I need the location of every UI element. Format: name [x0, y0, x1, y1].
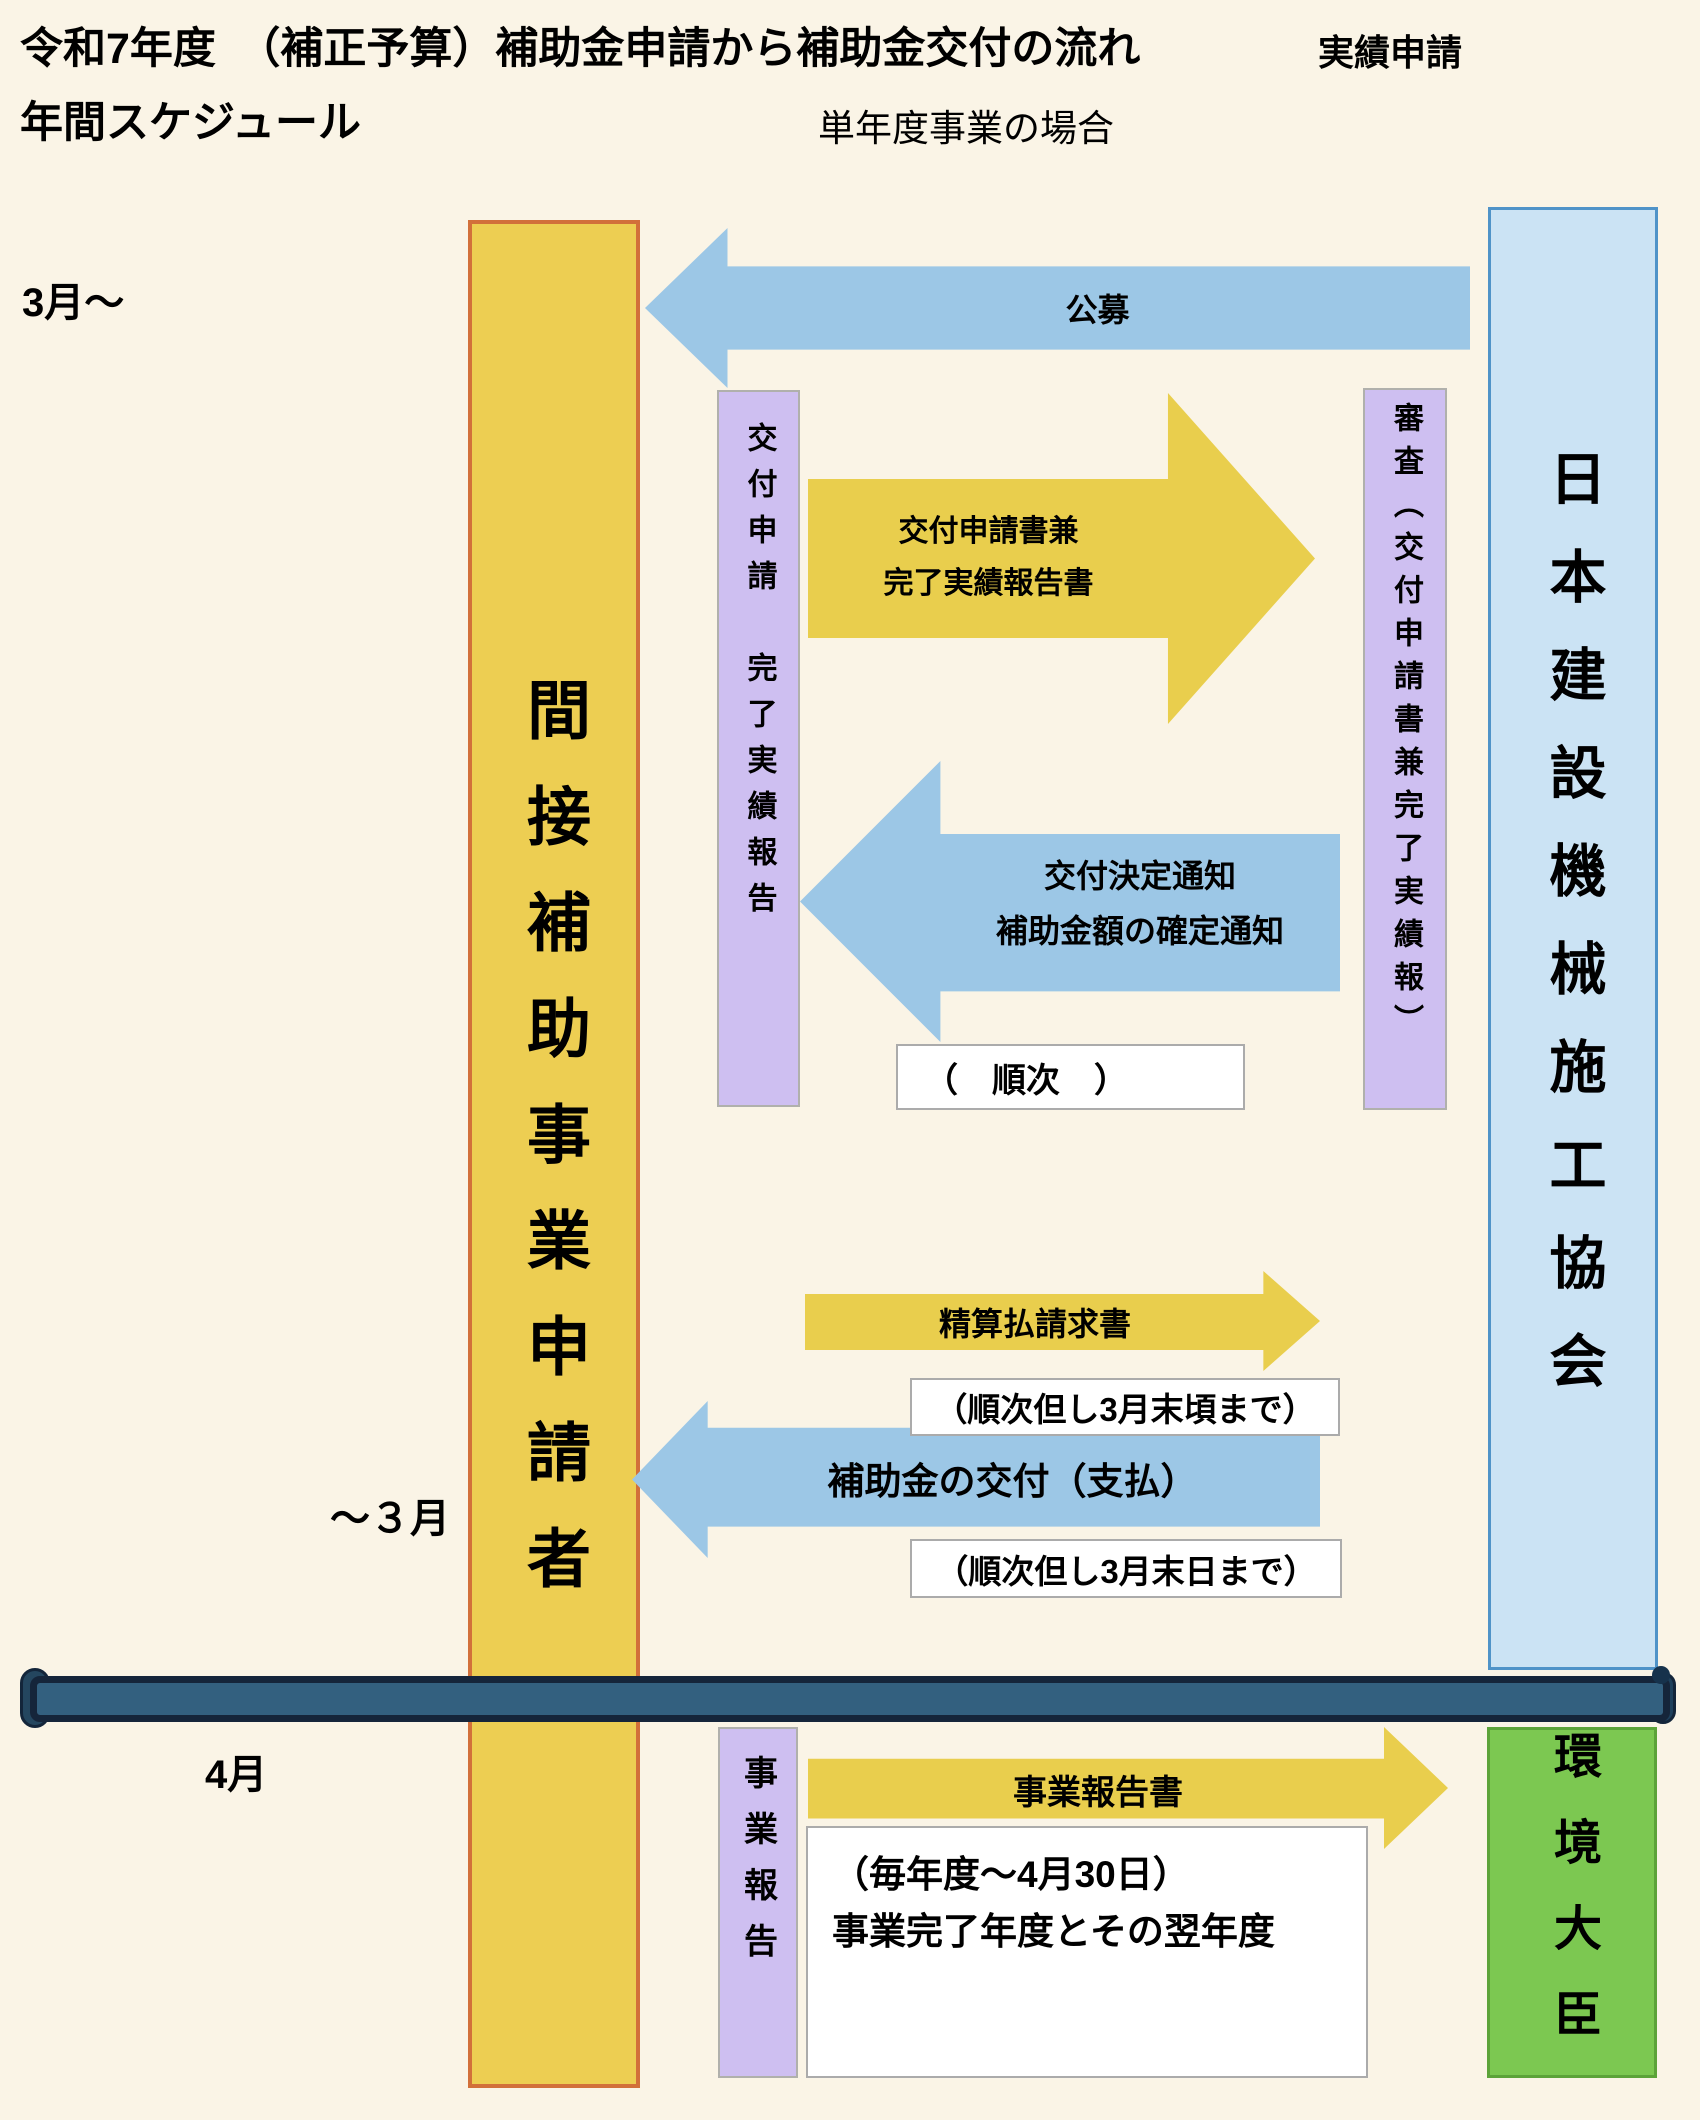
- business-report-text: 事業報告書: [1013, 1765, 1183, 1814]
- application-docs-line1: 交付申請書兼: [899, 506, 1079, 558]
- march-late-note-text: （順次但し3月末頃まで）: [934, 1383, 1315, 1431]
- minister-bar: 環境大臣: [1487, 1727, 1657, 2078]
- grant-decision-arrow-label: 交付決定通知 補助金額の確定通知: [941, 818, 1339, 990]
- report-deadline-note-box: （毎年度～4月30日） 事業完了年度とその翌年度: [806, 1826, 1368, 2078]
- business-report-stage-bar: 事業報告: [718, 1727, 798, 2078]
- business-report-arrow-label: 事業報告書: [808, 1752, 1388, 1826]
- association-bar: 日本建設機械施工協会: [1488, 207, 1658, 1670]
- page-title: 令和7年度 （補正予算）補助金申請から補助金交付の流れ: [20, 14, 1140, 76]
- association-bar-label: 日本建設機械施工協会: [1532, 449, 1614, 1429]
- page-subtitle-schedule: 年間スケジュール: [20, 88, 361, 150]
- grant-application-stage-label: 交付申請 完了実績報告: [737, 422, 781, 928]
- march-end-note-box: （順次但し3月末日まで）: [910, 1539, 1342, 1598]
- business-report-stage-label: 事業報告: [734, 1755, 783, 1979]
- grant-decision-line2: 補助金額の確定通知: [996, 904, 1284, 959]
- review-stage-bar: 審査（交付申請書兼完了実績報）: [1363, 388, 1447, 1110]
- minister-bar-label: 環境大臣: [1537, 1731, 1607, 2075]
- applicant-bar: 間接補助事業申請者: [468, 220, 640, 2088]
- public-offering-text: 公募: [1065, 285, 1129, 331]
- sequential-note-box: （ 順次 ）: [896, 1044, 1245, 1110]
- title-annotation: 実績申請: [1318, 24, 1462, 76]
- application-docs-line2: 完了実績報告書: [884, 558, 1094, 610]
- timeline-label-march-start: 3月～: [22, 270, 124, 328]
- applicant-bar-label: 間接補助事業申請者: [508, 677, 600, 1631]
- report-deadline-line2: 事業完了年度とその翌年度: [832, 1903, 1366, 1960]
- timeline-divider-bar: [30, 1676, 1670, 1722]
- timeline-label-april: 4月: [205, 1742, 267, 1800]
- settlement-invoice-arrow-label: 精算払請求書: [805, 1282, 1265, 1362]
- review-stage-label: 審査（交付申請書兼完了実績報）: [1383, 402, 1427, 1047]
- settlement-invoice-text: 精算払請求書: [939, 1299, 1131, 1345]
- subsidy-payment-arrow-label: 補助金の交付（支払）: [705, 1428, 1320, 1527]
- sequential-note-text: （ 順次 ）: [924, 1053, 1128, 1102]
- timeline-divider-knob: [1652, 1666, 1670, 1684]
- timeline-label-march-end: ～３月: [330, 1486, 450, 1544]
- public-offering-arrow-label: 公募: [725, 260, 1470, 356]
- grant-decision-line1: 交付決定通知: [1044, 849, 1236, 904]
- subsidy-payment-text: 補助金の交付（支払）: [828, 1451, 1198, 1505]
- application-docs-arrow-label: 交付申請書兼 完了実績報告書: [808, 470, 1169, 646]
- march-end-note-text: （順次但し3月末日まで）: [935, 1545, 1316, 1593]
- report-deadline-line1: （毎年度～4月30日）: [832, 1846, 1366, 1903]
- single-year-note: 単年度事業の場合: [818, 98, 1114, 152]
- grant-application-stage-bar: 交付申請 完了実績報告: [717, 390, 800, 1107]
- slide-canvas: 令和7年度 （補正予算）補助金申請から補助金交付の流れ 実績申請 年間スケジュー…: [0, 0, 1700, 2120]
